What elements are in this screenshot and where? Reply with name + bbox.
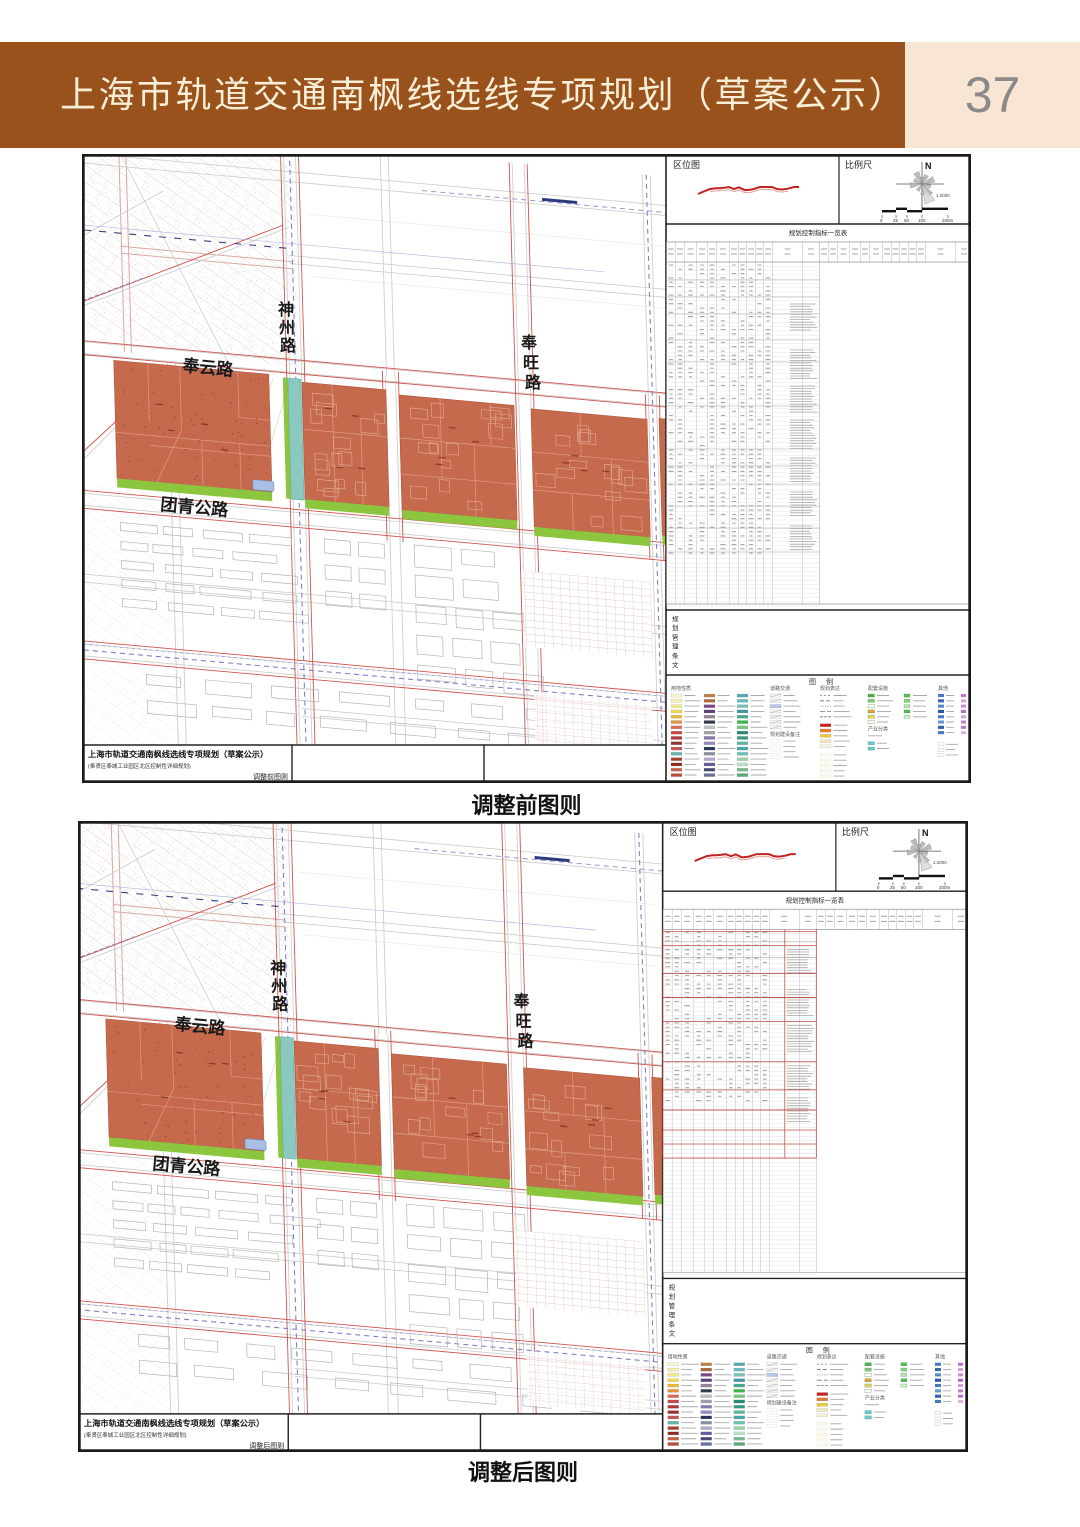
svg-text:其他: 其他 xyxy=(938,685,948,692)
svg-text:图 例: 图 例 xyxy=(806,1346,834,1355)
svg-text:100: 100 xyxy=(915,885,923,890)
svg-text:其他: 其他 xyxy=(935,1354,945,1361)
svg-text:管: 管 xyxy=(669,1301,676,1310)
svg-text:用地性质: 用地性质 xyxy=(671,685,691,692)
svg-text:规划控制指标一览表: 规划控制指标一览表 xyxy=(789,228,848,237)
svg-text:划: 划 xyxy=(669,1292,675,1301)
svg-text:区位图: 区位图 xyxy=(670,826,697,837)
svg-text:200m: 200m xyxy=(942,218,954,223)
svg-text:州: 州 xyxy=(270,978,287,996)
svg-text:神: 神 xyxy=(278,300,294,319)
svg-text:100: 100 xyxy=(918,218,926,223)
svg-text:产业分类: 产业分类 xyxy=(865,1394,885,1401)
svg-text:(奉贤区奉城工业园区北区控制性详细规划): (奉贤区奉城工业园区北区控制性详细规划) xyxy=(88,762,191,770)
svg-text:配套设施: 配套设施 xyxy=(865,1354,885,1361)
svg-text:25: 25 xyxy=(893,218,899,223)
svg-text:比例尺: 比例尺 xyxy=(842,826,869,837)
svg-text:200m: 200m xyxy=(939,885,950,890)
svg-text:调整前图则: 调整前图则 xyxy=(253,772,288,781)
svg-text:旺: 旺 xyxy=(523,354,539,372)
svg-text:(奉贤区奉城工业园区北区控制性详细规划): (奉贤区奉城工业园区北区控制性详细规划) xyxy=(84,1431,187,1439)
svg-text:路: 路 xyxy=(280,336,297,355)
svg-text:规划表达: 规划表达 xyxy=(817,1354,837,1361)
svg-text:1:2000: 1:2000 xyxy=(933,860,947,865)
svg-text:路: 路 xyxy=(272,995,289,1014)
svg-text:理: 理 xyxy=(669,1311,676,1319)
svg-text:N: N xyxy=(922,828,928,838)
svg-text:管: 管 xyxy=(672,632,679,641)
svg-text:区位图: 区位图 xyxy=(673,159,700,170)
svg-text:规划建设备注: 规划建设备注 xyxy=(767,1400,797,1407)
svg-text:产业分类: 产业分类 xyxy=(868,726,888,733)
svg-text:规划建设备注: 规划建设备注 xyxy=(770,731,800,738)
svg-text:配套设施: 配套设施 xyxy=(868,685,888,692)
svg-text:奉: 奉 xyxy=(512,992,530,1011)
svg-text:50: 50 xyxy=(901,885,906,890)
svg-text:50: 50 xyxy=(904,218,910,223)
svg-text:条: 条 xyxy=(672,651,679,660)
svg-text:道路交通: 道路交通 xyxy=(770,685,790,692)
svg-text:州: 州 xyxy=(278,319,295,337)
svg-text:神: 神 xyxy=(270,958,286,977)
svg-text:比例尺: 比例尺 xyxy=(845,159,872,170)
svg-text:1:2000: 1:2000 xyxy=(936,193,950,198)
svg-text:文: 文 xyxy=(672,660,679,669)
svg-text:N: N xyxy=(925,161,932,171)
svg-text:规划控制指标一览表: 规划控制指标一览表 xyxy=(786,895,845,904)
svg-text:规: 规 xyxy=(669,1282,676,1291)
svg-text:图 例: 图 例 xyxy=(809,677,837,686)
svg-text:规划表达: 规划表达 xyxy=(820,685,840,692)
svg-text:奉: 奉 xyxy=(520,333,538,352)
svg-text:路: 路 xyxy=(517,1032,534,1051)
svg-text:旺: 旺 xyxy=(515,1013,531,1031)
svg-text:条: 条 xyxy=(669,1319,676,1328)
svg-text:上海市轨道交通南枫线选线专项规划（草案公示）: 上海市轨道交通南枫线选线专项规划（草案公示） xyxy=(84,1418,264,1428)
svg-text:理: 理 xyxy=(672,643,679,651)
svg-text:道路交通: 道路交通 xyxy=(767,1354,787,1361)
svg-text:用地性质: 用地性质 xyxy=(668,1354,688,1361)
svg-text:25: 25 xyxy=(890,885,895,890)
svg-text:上海市轨道交通南枫线选线专项规划（草案公示）: 上海市轨道交通南枫线选线专项规划（草案公示） xyxy=(88,749,268,759)
svg-text:调整后图则: 调整后图则 xyxy=(249,1441,284,1450)
svg-text:划: 划 xyxy=(672,623,679,632)
svg-text:文: 文 xyxy=(669,1329,676,1338)
svg-text:规: 规 xyxy=(672,614,679,623)
svg-text:路: 路 xyxy=(525,373,542,392)
